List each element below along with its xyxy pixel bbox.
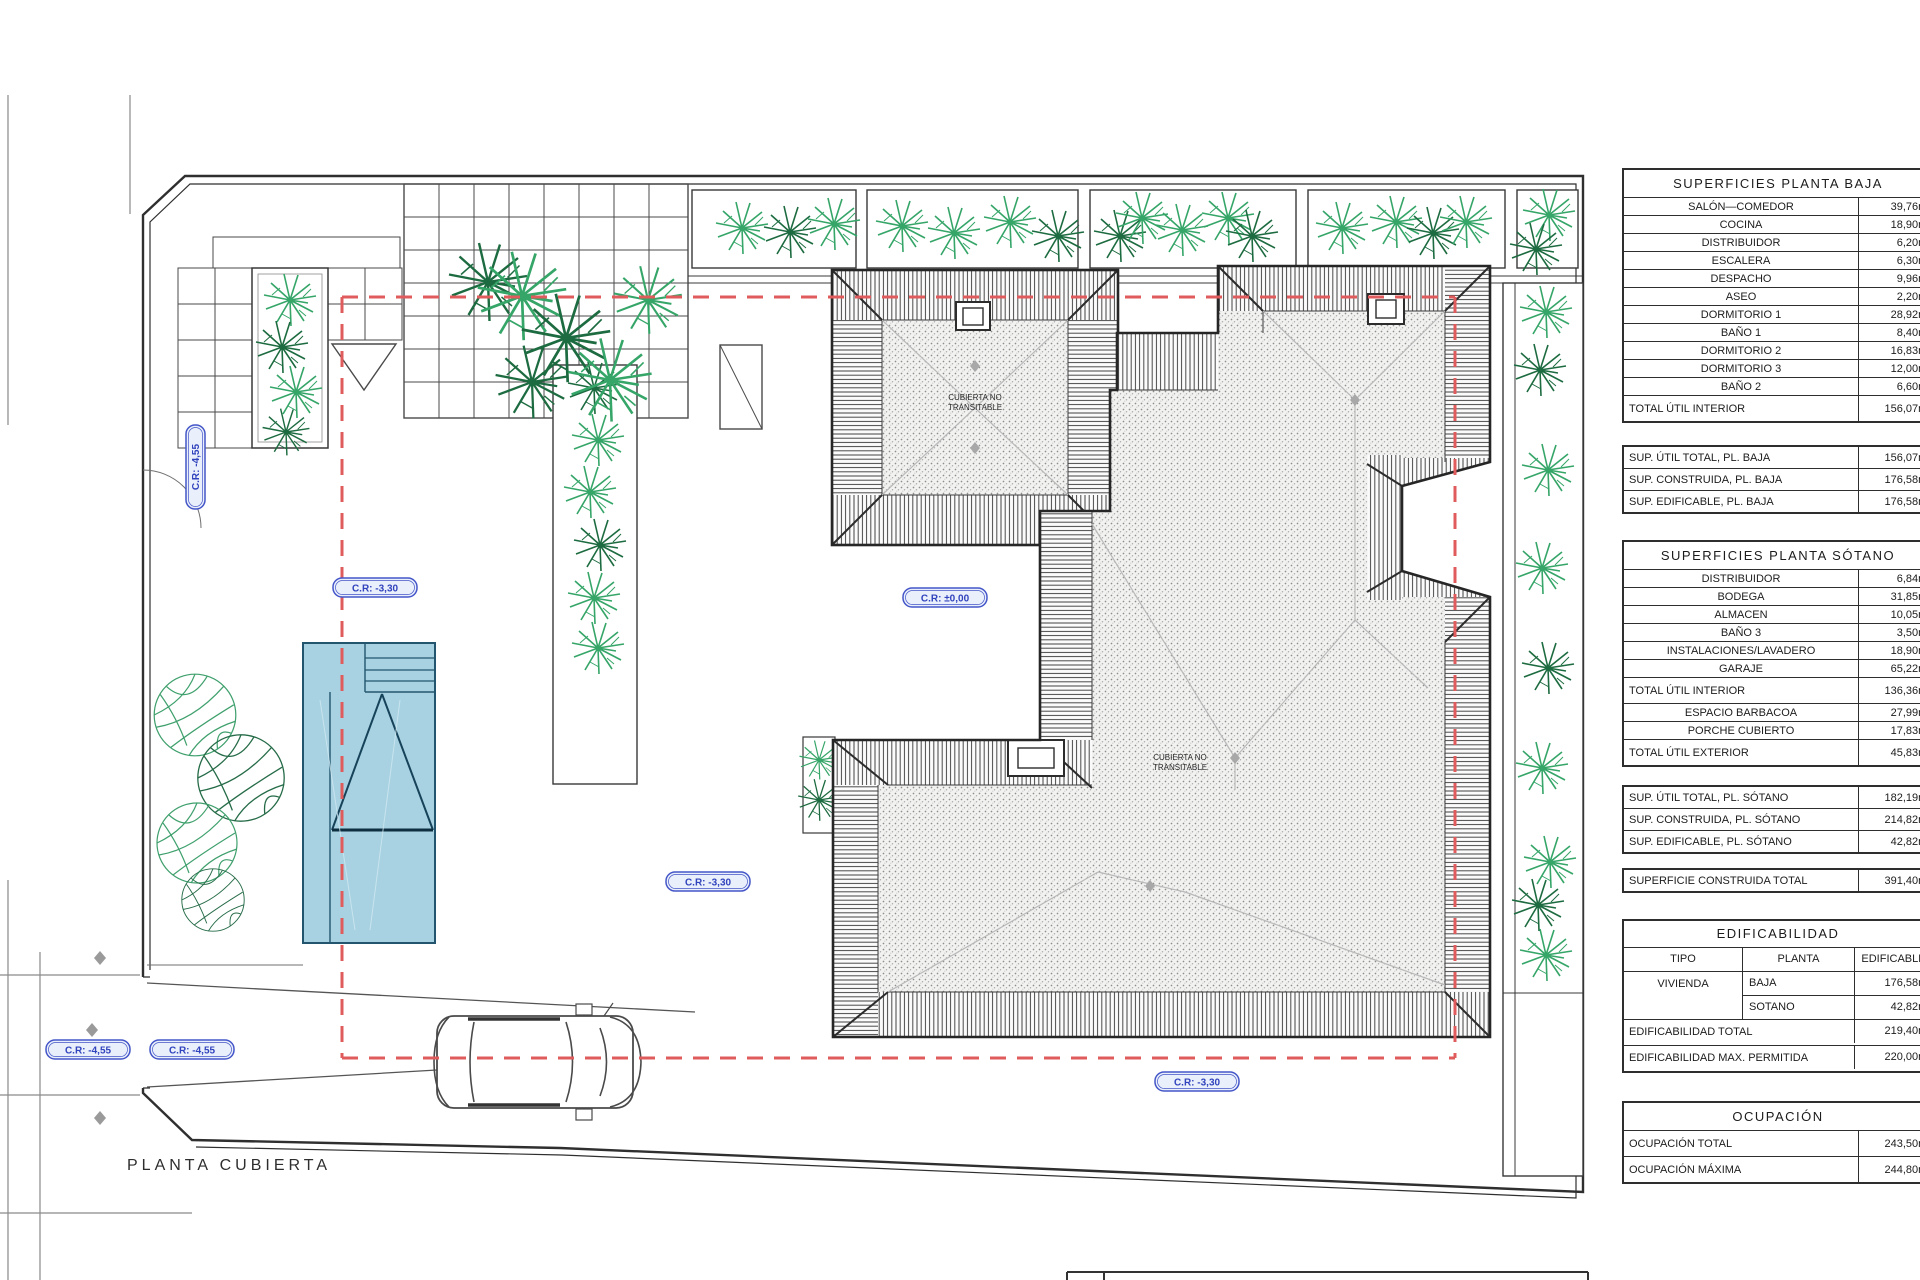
table-row: BODEGA31,85m² <box>1624 587 1920 605</box>
table-cell-value: 176,58m² <box>1858 469 1920 490</box>
table-cell-value: 244,80m² <box>1858 1157 1920 1182</box>
svg-text:C.R: -4,55: C.R: -4,55 <box>191 444 202 491</box>
table-cell-label: DESPACHO <box>1624 271 1858 287</box>
area-table: OCUPACIÓNOCUPACIÓN TOTAL243,50m²OCUPACIÓ… <box>1622 1101 1920 1184</box>
table-cell-value: 182,19m² <box>1858 787 1920 808</box>
table-cell-value: 156,07m² <box>1858 447 1920 468</box>
table-gap <box>1622 514 1920 540</box>
table-row: BAÑO 33,50m² <box>1624 623 1920 641</box>
table-cell-value: 156,07m² <box>1858 396 1920 421</box>
table-cell-label: BAJA <box>1742 971 1854 995</box>
table-cell-value: 243,50m² <box>1858 1131 1920 1156</box>
table-row: ESPACIO BARBACOA27,99m² <box>1624 703 1920 721</box>
table-cell-label: SUP. CONSTRUIDA, PL. BAJA <box>1624 470 1858 490</box>
table-cell-value: 176,58m² <box>1858 491 1920 512</box>
table-cell-label: ESCALERA <box>1624 253 1858 269</box>
table-cell-label: DISTRIBUIDOR <box>1624 235 1858 251</box>
area-table: SUPERFICIE CONSTRUIDA TOTAL391,40m² <box>1622 868 1920 893</box>
table-cell-label: BAÑO 3 <box>1624 625 1858 641</box>
table-gap <box>1622 893 1920 919</box>
table-cell-label: EDIFICABILIDAD TOTAL <box>1624 1019 1854 1045</box>
street-lines <box>0 95 192 1280</box>
table-cell-value: 42,82m² <box>1854 995 1920 1019</box>
table-cell-label: SUP. CONSTRUIDA, PL. SÓTANO <box>1624 810 1858 830</box>
table-gap <box>1622 1073 1920 1101</box>
table-cell-value: 18,90m² <box>1858 642 1920 659</box>
planter-middle <box>553 362 637 784</box>
swimming-pool <box>303 643 435 943</box>
table-row: SUP. ÚTIL TOTAL, PL. SÓTANO182,19m² <box>1624 787 1920 808</box>
table-cell-label: TOTAL ÚTIL EXTERIOR <box>1624 741 1858 765</box>
table-row: GARAJE65,22m² <box>1624 659 1920 677</box>
elevation-pill: C.R: -4,55 <box>150 1040 234 1059</box>
table-cell-label: ALMACEN <box>1624 607 1858 623</box>
survey-diamond-markers <box>86 951 106 1125</box>
table-cell-value: 6,60m² <box>1858 378 1920 395</box>
table-row: SUP. EDIFICABLE, PL. SÓTANO42,82m² <box>1624 830 1920 852</box>
table-cell-label: SOTANO <box>1742 995 1854 1019</box>
area-table: SUP. ÚTIL TOTAL, PL. BAJA156,07m²SUP. CO… <box>1622 445 1920 514</box>
table-row: BAÑO 26,60m² <box>1624 377 1920 395</box>
table-cell-label: OCUPACIÓN TOTAL <box>1624 1132 1858 1156</box>
table-cell-label: ESPACIO BARBACOA <box>1624 705 1858 721</box>
table-cell-label: PORCHE CUBIERTO <box>1624 723 1858 739</box>
table-cell-label: DORMITORIO 1 <box>1624 307 1858 323</box>
table-row: BAÑO 18,40m² <box>1624 323 1920 341</box>
table-cell-label: EDIFICABILIDAD MAX. PERMITIDA <box>1624 1045 1854 1071</box>
table-row: TOTAL ÚTIL INTERIOR136,36m² <box>1624 677 1920 703</box>
table-cell-label: TOTAL ÚTIL INTERIOR <box>1624 397 1858 421</box>
table-row: SUPERFICIES PLANTA SÓTANO <box>1624 542 1920 569</box>
table-cell-label: GARAJE <box>1624 661 1858 677</box>
area-table: SUPERFICIES PLANTA BAJASALÓN—COMEDOR39,7… <box>1622 168 1920 423</box>
table-cell-value: 65,22m² <box>1858 660 1920 677</box>
elevation-pill: C.R: -3,30 <box>333 578 417 597</box>
elevation-pill: C.R: -4,55 <box>46 1040 130 1059</box>
table-row: SUP. CONSTRUIDA, PL. BAJA176,58m² <box>1624 468 1920 490</box>
roof-small-note-1: CUBIERTA NO <box>948 393 1002 402</box>
area-table: SUP. ÚTIL TOTAL, PL. SÓTANO182,19m²SUP. … <box>1622 785 1920 854</box>
svg-text:C.R: -3,30: C.R: -3,30 <box>685 878 732 889</box>
elevation-pill: C.R: -3,30 <box>666 872 750 891</box>
table-gap <box>1622 767 1920 785</box>
table-cell-label: SUPERFICIES PLANTA SÓTANO <box>1624 542 1920 569</box>
drawing-title: PLANTA CUBIERTA <box>127 1157 331 1174</box>
table-row: DORMITORIO 216,83m² <box>1624 341 1920 359</box>
planter-strip-right <box>1503 283 1583 1176</box>
table-cell-label: BAÑO 1 <box>1624 325 1858 341</box>
table-cell-value: 391,40m² <box>1858 870 1920 891</box>
table-gap <box>1622 854 1920 868</box>
table-cell-value: 176,58m² <box>1854 971 1920 995</box>
table-cell-label: VIVIENDA <box>1624 971 1742 995</box>
table-cell-label: BODEGA <box>1624 589 1858 605</box>
table-row: DORMITORIO 312,00m² <box>1624 359 1920 377</box>
roof-main-note-1: CUBIERTA NO <box>1153 753 1207 762</box>
table-cell-label: TOTAL ÚTIL INTERIOR <box>1624 679 1858 703</box>
table-cell-value: 28,92m² <box>1858 306 1920 323</box>
table-gap <box>1622 423 1920 445</box>
table-cell-label: SUPERFICIES PLANTA BAJA <box>1624 170 1920 197</box>
table-cell-label: INSTALACIONES/LAVADERO <box>1624 643 1858 659</box>
table-cell-label: DISTRIBUIDOR <box>1624 571 1858 587</box>
table-col-header: EDIFICABLE <box>1854 947 1920 971</box>
table-cell-value: 219,40m² <box>1854 1019 1920 1043</box>
roof-small: CUBIERTA NO TRANSITABLE <box>832 270 1118 545</box>
table-row: OCUPACIÓN MÁXIMA244,80m² <box>1624 1156 1920 1182</box>
title-block-edge <box>1067 1272 1588 1280</box>
table-col-header: PLANTA <box>1742 947 1854 971</box>
table-cell-value: 27,99m² <box>1858 704 1920 721</box>
table-cell-label: SUP. ÚTIL TOTAL, PL. SÓTANO <box>1624 788 1858 808</box>
floor-plan-canvas: CUBIERTA NO TRANSITABLE CUBIERTA NO TRAN… <box>0 0 1920 1280</box>
table-row: DISTRIBUIDOR6,84m² <box>1624 569 1920 587</box>
table-cell-value: 3,50m² <box>1858 624 1920 641</box>
table-row: DORMITORIO 128,92m² <box>1624 305 1920 323</box>
table-cell-label: SUP. EDIFICABLE, PL. SÓTANO <box>1624 832 1858 852</box>
area-table: SUPERFICIES PLANTA SÓTANODISTRIBUIDOR6,8… <box>1622 540 1920 767</box>
table-row: ASEO2,20m² <box>1624 287 1920 305</box>
svg-text:C.R: -4,55: C.R: -4,55 <box>65 1046 112 1057</box>
table-cell-label: DORMITORIO 3 <box>1624 361 1858 377</box>
table-row: ALMACEN10,05m² <box>1624 605 1920 623</box>
table-cell-value: 45,83m² <box>1858 740 1920 765</box>
entry-terrace-grids <box>143 184 762 965</box>
table-cell-label: OCUPACIÓN MÁXIMA <box>1624 1158 1858 1182</box>
table-row: COCINA18,90m² <box>1624 215 1920 233</box>
table-cell-label: ASEO <box>1624 289 1858 305</box>
table-row: ESCALERA6,30m² <box>1624 251 1920 269</box>
table-row: SUP. ÚTIL TOTAL, PL. BAJA156,07m² <box>1624 447 1920 468</box>
roof-small-note-2: TRANSITABLE <box>948 403 1002 412</box>
table-cell-label: SUP. ÚTIL TOTAL, PL. BAJA <box>1624 448 1858 468</box>
table-header: EDIFICABILIDAD <box>1624 921 1920 947</box>
elevation-pill: C.R: ±0,00 <box>903 588 987 607</box>
table-cell-value: 8,40m² <box>1858 324 1920 341</box>
table-cell-value: 18,90m² <box>1858 216 1920 233</box>
table-cell-value: 16,83m² <box>1858 342 1920 359</box>
garden-trees <box>154 674 284 931</box>
table-row: TOTAL ÚTIL INTERIOR156,07m² <box>1624 395 1920 421</box>
table-cell-value: 42,82m² <box>1858 831 1920 852</box>
table-cell-value: 220,00m² <box>1854 1045 1920 1069</box>
elevation-pill: C.R: -4,55 <box>186 425 205 509</box>
table-row: TOTAL ÚTIL EXTERIOR45,83m² <box>1624 739 1920 765</box>
table-cell-value: 12,00m² <box>1858 360 1920 377</box>
svg-text:C.R: -4,55: C.R: -4,55 <box>169 1046 216 1057</box>
car-top-view <box>434 1003 641 1120</box>
edificabilidad-table: EDIFICABILIDADTIPOPLANTAEDIFICABLEVIVIEN… <box>1622 919 1920 1073</box>
svg-text:C.R: -3,30: C.R: -3,30 <box>1174 1078 1221 1089</box>
svg-text:C.R: ±0,00: C.R: ±0,00 <box>921 594 970 605</box>
table-cell-value: 2,20m² <box>1858 288 1920 305</box>
table-cell-label: SALÓN—COMEDOR <box>1624 199 1858 215</box>
table-col-header: TIPO <box>1624 947 1742 971</box>
svg-text:C.R: -3,30: C.R: -3,30 <box>352 584 399 595</box>
table-row: OCUPACIÓN <box>1624 1103 1920 1130</box>
roof-main-note-2: TRANSITABLE <box>1153 763 1207 772</box>
table-cell-value: 31,85m² <box>1858 588 1920 605</box>
table-cell-value: 39,76m² <box>1858 198 1920 215</box>
table-cell-value: 10,05m² <box>1858 606 1920 623</box>
table-cell-value: 6,20m² <box>1858 234 1920 251</box>
planter-left <box>252 268 328 455</box>
table-row: INSTALACIONES/LAVADERO18,90m² <box>1624 641 1920 659</box>
table-row: SUP. EDIFICABLE, PL. BAJA176,58m² <box>1624 490 1920 512</box>
table-cell-value: 6,84m² <box>1858 570 1920 587</box>
table-row: DESPACHO9,96m² <box>1624 269 1920 287</box>
table-cell-value: 9,96m² <box>1858 270 1920 287</box>
table-row: SUP. CONSTRUIDA, PL. SÓTANO214,82m² <box>1624 808 1920 830</box>
table-cell-label: SUPERFICIE CONSTRUIDA TOTAL <box>1624 871 1858 891</box>
elevation-pill: C.R: -3,30 <box>1155 1072 1239 1091</box>
table-row: SUPERFICIES PLANTA BAJA <box>1624 170 1920 197</box>
table-row: SALÓN—COMEDOR39,76m² <box>1624 197 1920 215</box>
table-cell-label: BAÑO 2 <box>1624 379 1858 395</box>
table-row: DISTRIBUIDOR6,20m² <box>1624 233 1920 251</box>
table-cell-label: COCINA <box>1624 217 1858 233</box>
table-cell-value: 6,30m² <box>1858 252 1920 269</box>
table-cell-label: DORMITORIO 2 <box>1624 343 1858 359</box>
table-row: PORCHE CUBIERTO17,83m² <box>1624 721 1920 739</box>
area-tables-panel: SUPERFICIES PLANTA BAJASALÓN—COMEDOR39,7… <box>1622 168 1920 1184</box>
table-cell-value: 136,36m² <box>1858 678 1920 703</box>
table-cell-label: SUP. EDIFICABLE, PL. BAJA <box>1624 492 1858 512</box>
table-row: OCUPACIÓN TOTAL243,50m² <box>1624 1130 1920 1156</box>
table-cell-value: 17,83m² <box>1858 722 1920 739</box>
table-cell-value: 214,82m² <box>1858 809 1920 830</box>
table-cell-label: OCUPACIÓN <box>1624 1103 1920 1130</box>
table-row: SUPERFICIE CONSTRUIDA TOTAL391,40m² <box>1624 870 1920 891</box>
